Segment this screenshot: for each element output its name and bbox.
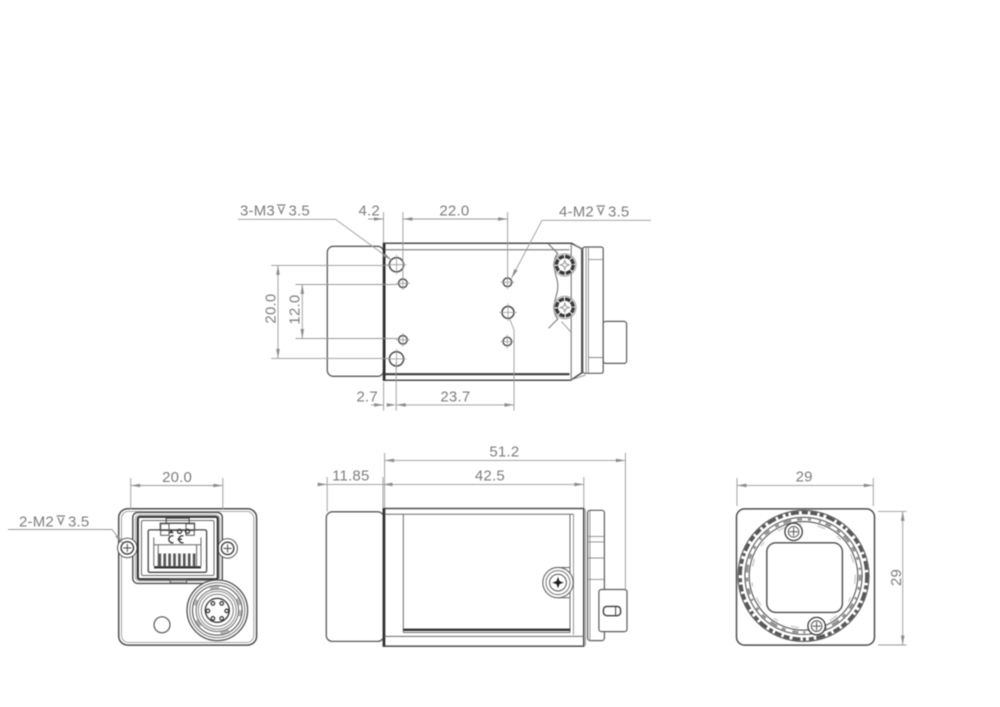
svg-text:29: 29	[796, 469, 813, 486]
svg-text:4-M2: 4-M2	[559, 204, 594, 221]
svg-text:23.7: 23.7	[440, 389, 470, 406]
svg-text:3.5: 3.5	[68, 514, 89, 531]
svg-text:51.2: 51.2	[489, 444, 519, 461]
svg-text:20.0: 20.0	[263, 294, 280, 324]
svg-text:2-M2: 2-M2	[19, 514, 54, 531]
svg-text:3.5: 3.5	[289, 203, 310, 220]
svg-text:12.0: 12.0	[287, 295, 304, 325]
svg-text:22.0: 22.0	[439, 203, 469, 220]
svg-text:4.2: 4.2	[359, 203, 380, 220]
svg-text:20.0: 20.0	[162, 469, 192, 486]
svg-text:29: 29	[888, 569, 905, 586]
svg-text:42.5: 42.5	[475, 468, 505, 485]
svg-text:2.7: 2.7	[357, 389, 378, 406]
svg-text:3-M3: 3-M3	[240, 203, 275, 220]
svg-text:3.5: 3.5	[608, 204, 629, 221]
svg-text:11.85: 11.85	[332, 468, 369, 485]
